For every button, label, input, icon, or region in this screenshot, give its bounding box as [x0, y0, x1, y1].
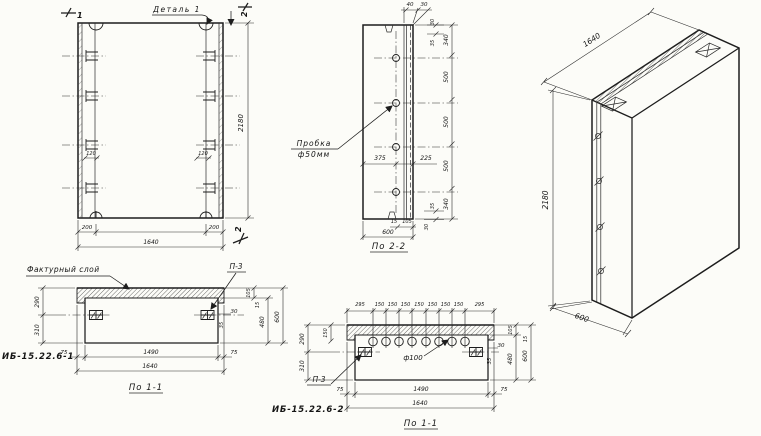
section-2-2: Пробка ф50мм 40 30 30 35 340 500 500 500… — [291, 2, 458, 252]
chain-340: 340 — [443, 34, 450, 46]
detail-callout: Деталь 1 — [152, 5, 208, 24]
lifting-hooks — [89, 23, 213, 218]
dim-120-right: 120 — [198, 151, 208, 157]
iso-dims: 1640 2180 600 — [541, 8, 699, 337]
chain-150: 150 — [388, 302, 398, 308]
title-po-2-2: По 2-2 — [372, 242, 406, 252]
dim-600: 600 — [274, 311, 281, 323]
dim-corner-bottom: 35 30 — [424, 203, 444, 230]
dim-600: 600 — [522, 350, 529, 362]
dim-150: 150 — [323, 328, 329, 338]
chain-500: 500 — [443, 71, 450, 83]
dim-75-right: 75 — [231, 350, 238, 356]
embed-label: П-3 — [229, 262, 242, 271]
chain-500: 500 — [443, 116, 450, 128]
dim-480: 480 — [507, 353, 514, 365]
facing-layer-lines — [404, 25, 407, 219]
body-outline — [85, 298, 218, 343]
anchor-axis-lines — [62, 56, 240, 188]
dim-120-left: 120 — [86, 151, 96, 157]
plug-label-1: Пробка — [297, 139, 332, 148]
hole-label: ф100 — [403, 354, 423, 362]
embed-callout: П-3 — [307, 355, 361, 385]
dim-bottom: 15 105 600 — [361, 219, 417, 240]
dim-1640: 1640 — [143, 239, 158, 246]
dim-480: 480 — [259, 316, 266, 328]
dim-30: 30 — [421, 2, 428, 8]
dim-1490: 1490 — [413, 386, 428, 393]
section-1-1-right: 295 150 150 150 150 150 150 150 295 150 … — [272, 302, 536, 429]
dim-375: 375 — [374, 155, 386, 162]
dim-strip: 150 — [323, 323, 334, 344]
dim-290: 290 — [34, 296, 41, 308]
chain-150: 150 — [401, 302, 411, 308]
panel-edge-hatch — [78, 23, 223, 218]
plug-label-2: ф50мм — [298, 150, 330, 159]
embed-label: П-3 — [312, 375, 325, 384]
detail-label: Деталь 1 — [152, 5, 201, 14]
dim-corner-35b: 35 — [430, 203, 436, 209]
chain-500: 500 — [443, 160, 450, 172]
section-title: По 2-2 — [370, 242, 408, 252]
dim-105: 105 — [246, 288, 252, 298]
dim-40: 40 — [407, 2, 414, 8]
chain-150: 150 — [428, 302, 438, 308]
dim-anchor-offset: 120 120 — [83, 151, 212, 161]
anchor-marks — [86, 50, 215, 194]
isometric-view: 1640 2180 600 — [541, 8, 739, 337]
facing-strip — [77, 288, 224, 303]
dim-105: 105 — [508, 325, 514, 335]
facing-layer-label: Фактурный слой — [27, 265, 100, 274]
dim-1640: 1640 — [142, 363, 157, 370]
iso-dim-600: 600 — [574, 311, 591, 324]
dim-height: 2180 — [225, 21, 254, 221]
cut-mark-1: 1 — [77, 11, 83, 20]
dim-30: 30 — [231, 309, 238, 315]
dim-corner-35: 35 — [430, 40, 436, 46]
iso-outline — [592, 30, 739, 318]
section-title: По 1-1 — [404, 419, 438, 429]
dim-310: 310 — [299, 360, 306, 372]
technical-drawing: 120 120 2180 200 200 1640 1 2 2 Деталь 1 — [0, 0, 761, 436]
section-1-1-left: Фактурный слой П-3 290 310 75 1490 75 16… — [2, 262, 288, 393]
dim-top: 40 30 — [401, 2, 432, 25]
hook-recesses — [385, 25, 396, 219]
chain-150: 150 — [441, 302, 451, 308]
title-po-1-1: По 1-1 — [129, 383, 163, 393]
dim-290: 290 — [299, 333, 306, 345]
chain-295: 295 — [355, 302, 365, 308]
facing-strip — [347, 325, 494, 340]
dim-1640: 1640 — [412, 400, 427, 407]
iso-facing-lines — [597, 32, 708, 304]
dim-200-left: 200 — [82, 225, 93, 231]
dim-2180: 2180 — [237, 114, 245, 132]
dim-200-right: 200 — [209, 225, 220, 231]
iso-anchor-marks — [602, 43, 721, 111]
dim-corner-30: 30 — [430, 19, 436, 25]
dim-225: 225 — [420, 155, 432, 162]
drawing-sheet: 120 120 2180 200 200 1640 1 2 2 Деталь 1 — [0, 0, 761, 436]
dim-corner-top: 30 35 — [427, 19, 444, 46]
dim-310: 310 — [34, 324, 41, 336]
panel-outline — [78, 23, 223, 218]
iso-dim-2180: 2180 — [541, 190, 550, 209]
dim-75-right: 75 — [501, 387, 508, 393]
product-mark-2: ИБ-15.22.6-2 — [272, 405, 344, 415]
dim-right-chain: 340 500 500 500 340 — [415, 23, 458, 222]
cut-mark-2-top: 2 — [240, 11, 249, 17]
facing-callout: Фактурный слой — [26, 265, 129, 289]
panel-rib-lines — [82, 23, 219, 218]
chain-340: 340 — [443, 198, 450, 210]
dim-35: 35 — [219, 322, 225, 328]
chain-150: 150 — [454, 302, 464, 308]
dim-corner-30b: 30 — [424, 224, 430, 230]
dim-1490: 1490 — [143, 349, 158, 356]
embed-callout: П-3 — [211, 262, 246, 309]
dim-15: 15 — [391, 219, 397, 225]
dim-30: 30 — [498, 343, 505, 349]
product-mark-1: ИБ-15.22.6-1 — [2, 352, 74, 362]
dim-75-left: 75 — [337, 387, 344, 393]
title-po-1-1: По 1-1 — [404, 419, 438, 429]
iso-holes — [594, 132, 606, 276]
dim-left: 290 310 — [34, 286, 83, 346]
cut-mark-2-bottom: 2 — [234, 226, 243, 232]
dim-right: 105 15 30 35 480 600 — [218, 286, 288, 346]
front-view: 120 120 2180 200 200 1640 1 2 2 Деталь 1 — [61, 3, 254, 251]
plug-callout: Пробка ф50мм — [291, 106, 392, 159]
dim-35: 35 — [487, 358, 493, 364]
dim-bottom: 200 200 1640 — [76, 220, 226, 251]
dim-mid: 375 225 — [361, 155, 438, 167]
section-outline — [363, 25, 413, 219]
dim-15: 15 — [523, 336, 529, 342]
chain-295: 295 — [475, 302, 485, 308]
dim-105: 105 — [402, 219, 412, 225]
section-title: По 1-1 — [129, 383, 163, 393]
dim-600: 600 — [382, 229, 394, 236]
dim-15: 15 — [255, 302, 261, 308]
chain-150: 150 — [414, 302, 424, 308]
dim-top-chain: 295 150 150 150 150 150 150 150 295 — [345, 302, 497, 323]
chain-150: 150 — [375, 302, 385, 308]
